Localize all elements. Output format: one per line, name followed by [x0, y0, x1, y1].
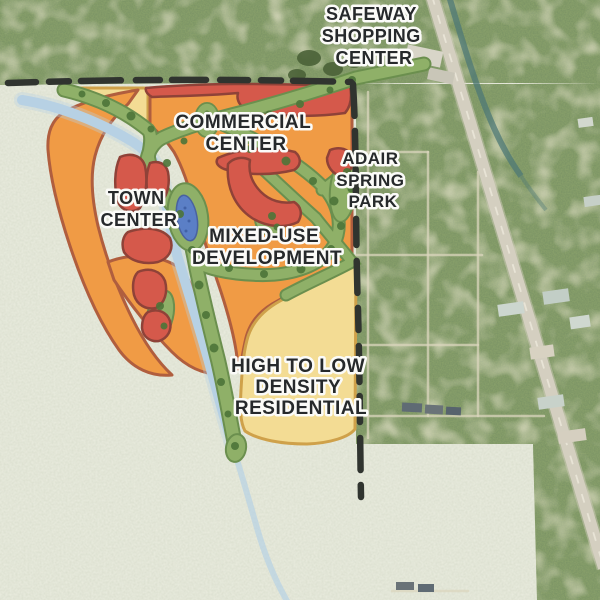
label-mixed-use-development: MIXED-USE DEVELOPMENT — [192, 226, 342, 269]
landuse-concept-map: SAFEWAY SHOPPING CENTER COMMERCIAL CENTE… — [0, 0, 600, 600]
label-safeway-shopping-center: SAFEWAY SHOPPING CENTER — [322, 4, 427, 68]
map-canvas: SAFEWAY SHOPPING CENTER COMMERCIAL CENTE… — [0, 0, 600, 600]
red-pad-town-c — [123, 229, 172, 263]
boundary-north — [8, 80, 351, 83]
